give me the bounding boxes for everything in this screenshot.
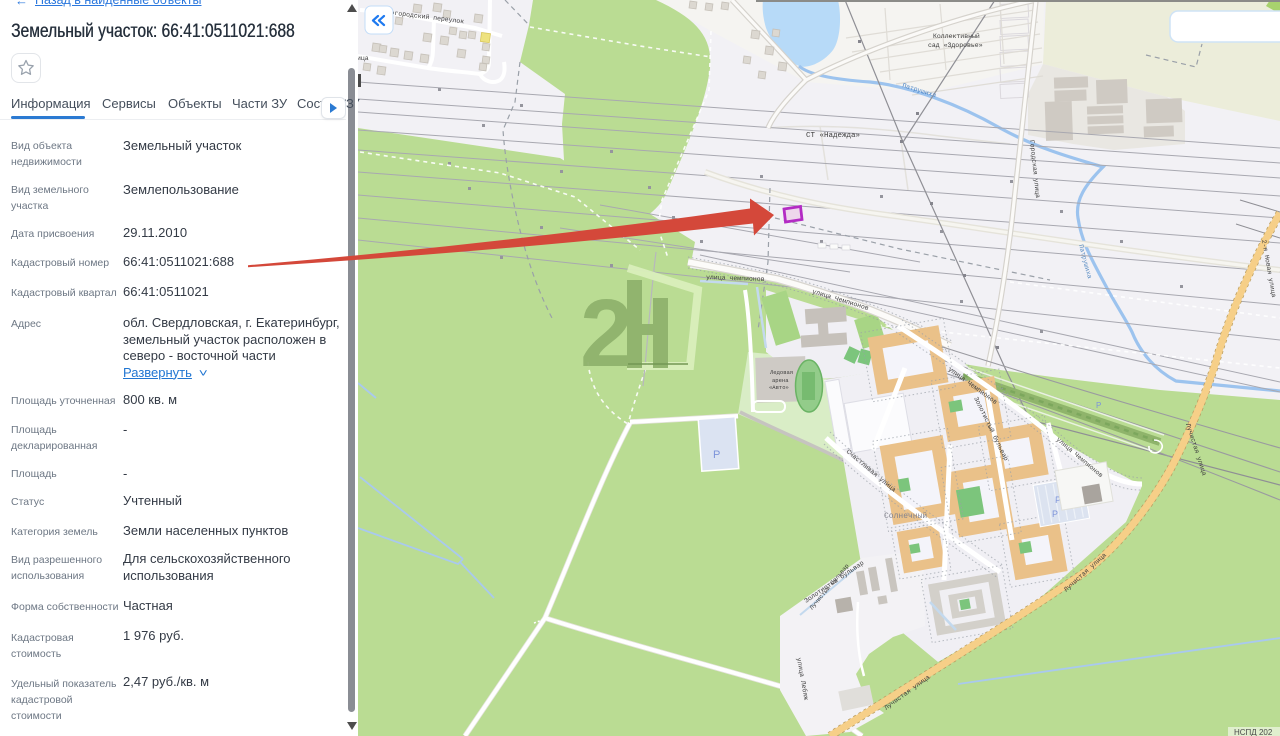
svg-text:P: P [1096,401,1101,410]
svg-text:НСПД 202: НСПД 202 [1234,728,1273,736]
svg-text:P: P [713,449,720,461]
svg-text:«Авто»: «Авто» [769,384,789,391]
svg-text:СТ «Надежда»: СТ «Надежда» [806,132,861,140]
svg-text:Солнечный: Солнечный [884,512,927,521]
svg-text:P: P [1052,509,1058,519]
svg-text:арена: арена [772,377,789,384]
svg-text:2: 2 [580,280,633,387]
svg-text:Ледовая: Ледовая [770,369,793,376]
svg-text:Коллективный: Коллективный [933,32,980,40]
svg-text:ица: ица [357,55,369,62]
svg-text:сад «Здоровье»: сад «Здоровье» [928,42,983,49]
